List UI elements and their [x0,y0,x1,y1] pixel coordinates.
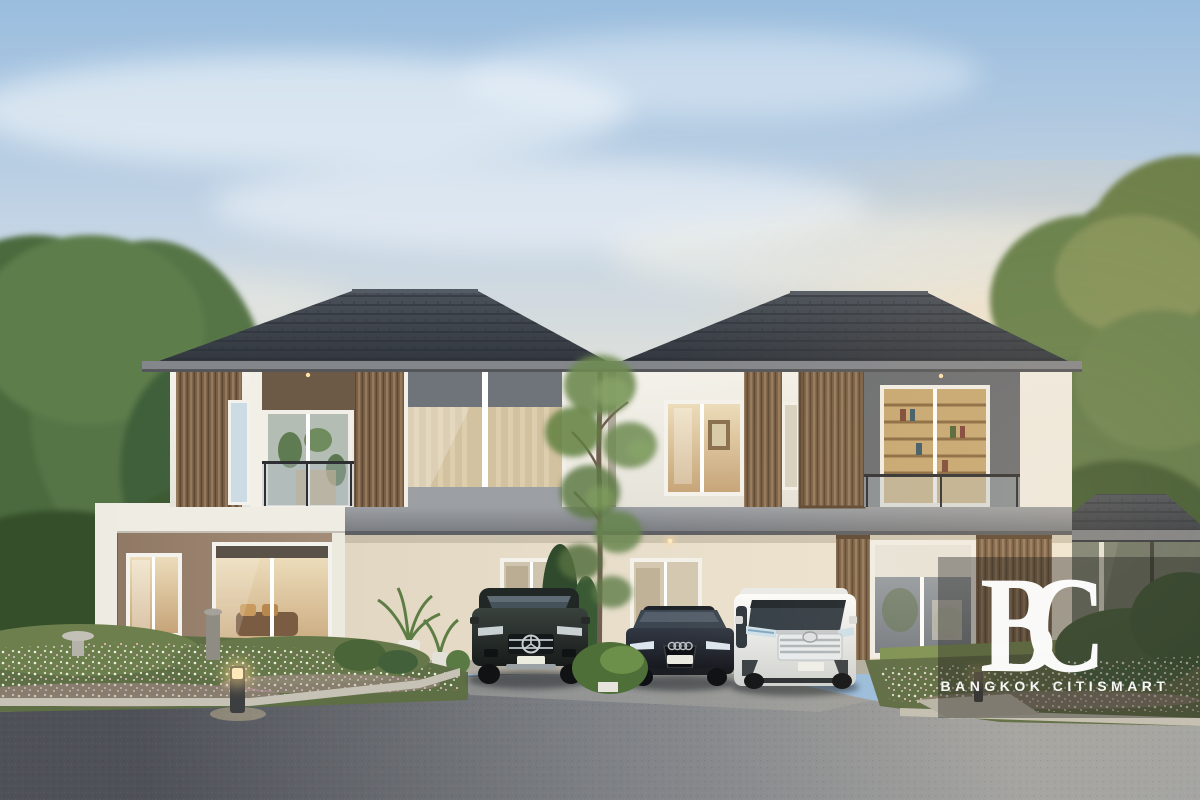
brand-name: BANGKOK CITISMART [938,678,1172,694]
rendering-canvas: BC BANGKOK CITISMART [0,0,1200,800]
brand-logo-bc: BC [940,556,1170,682]
brand-logo-text: BC [1005,556,1075,694]
